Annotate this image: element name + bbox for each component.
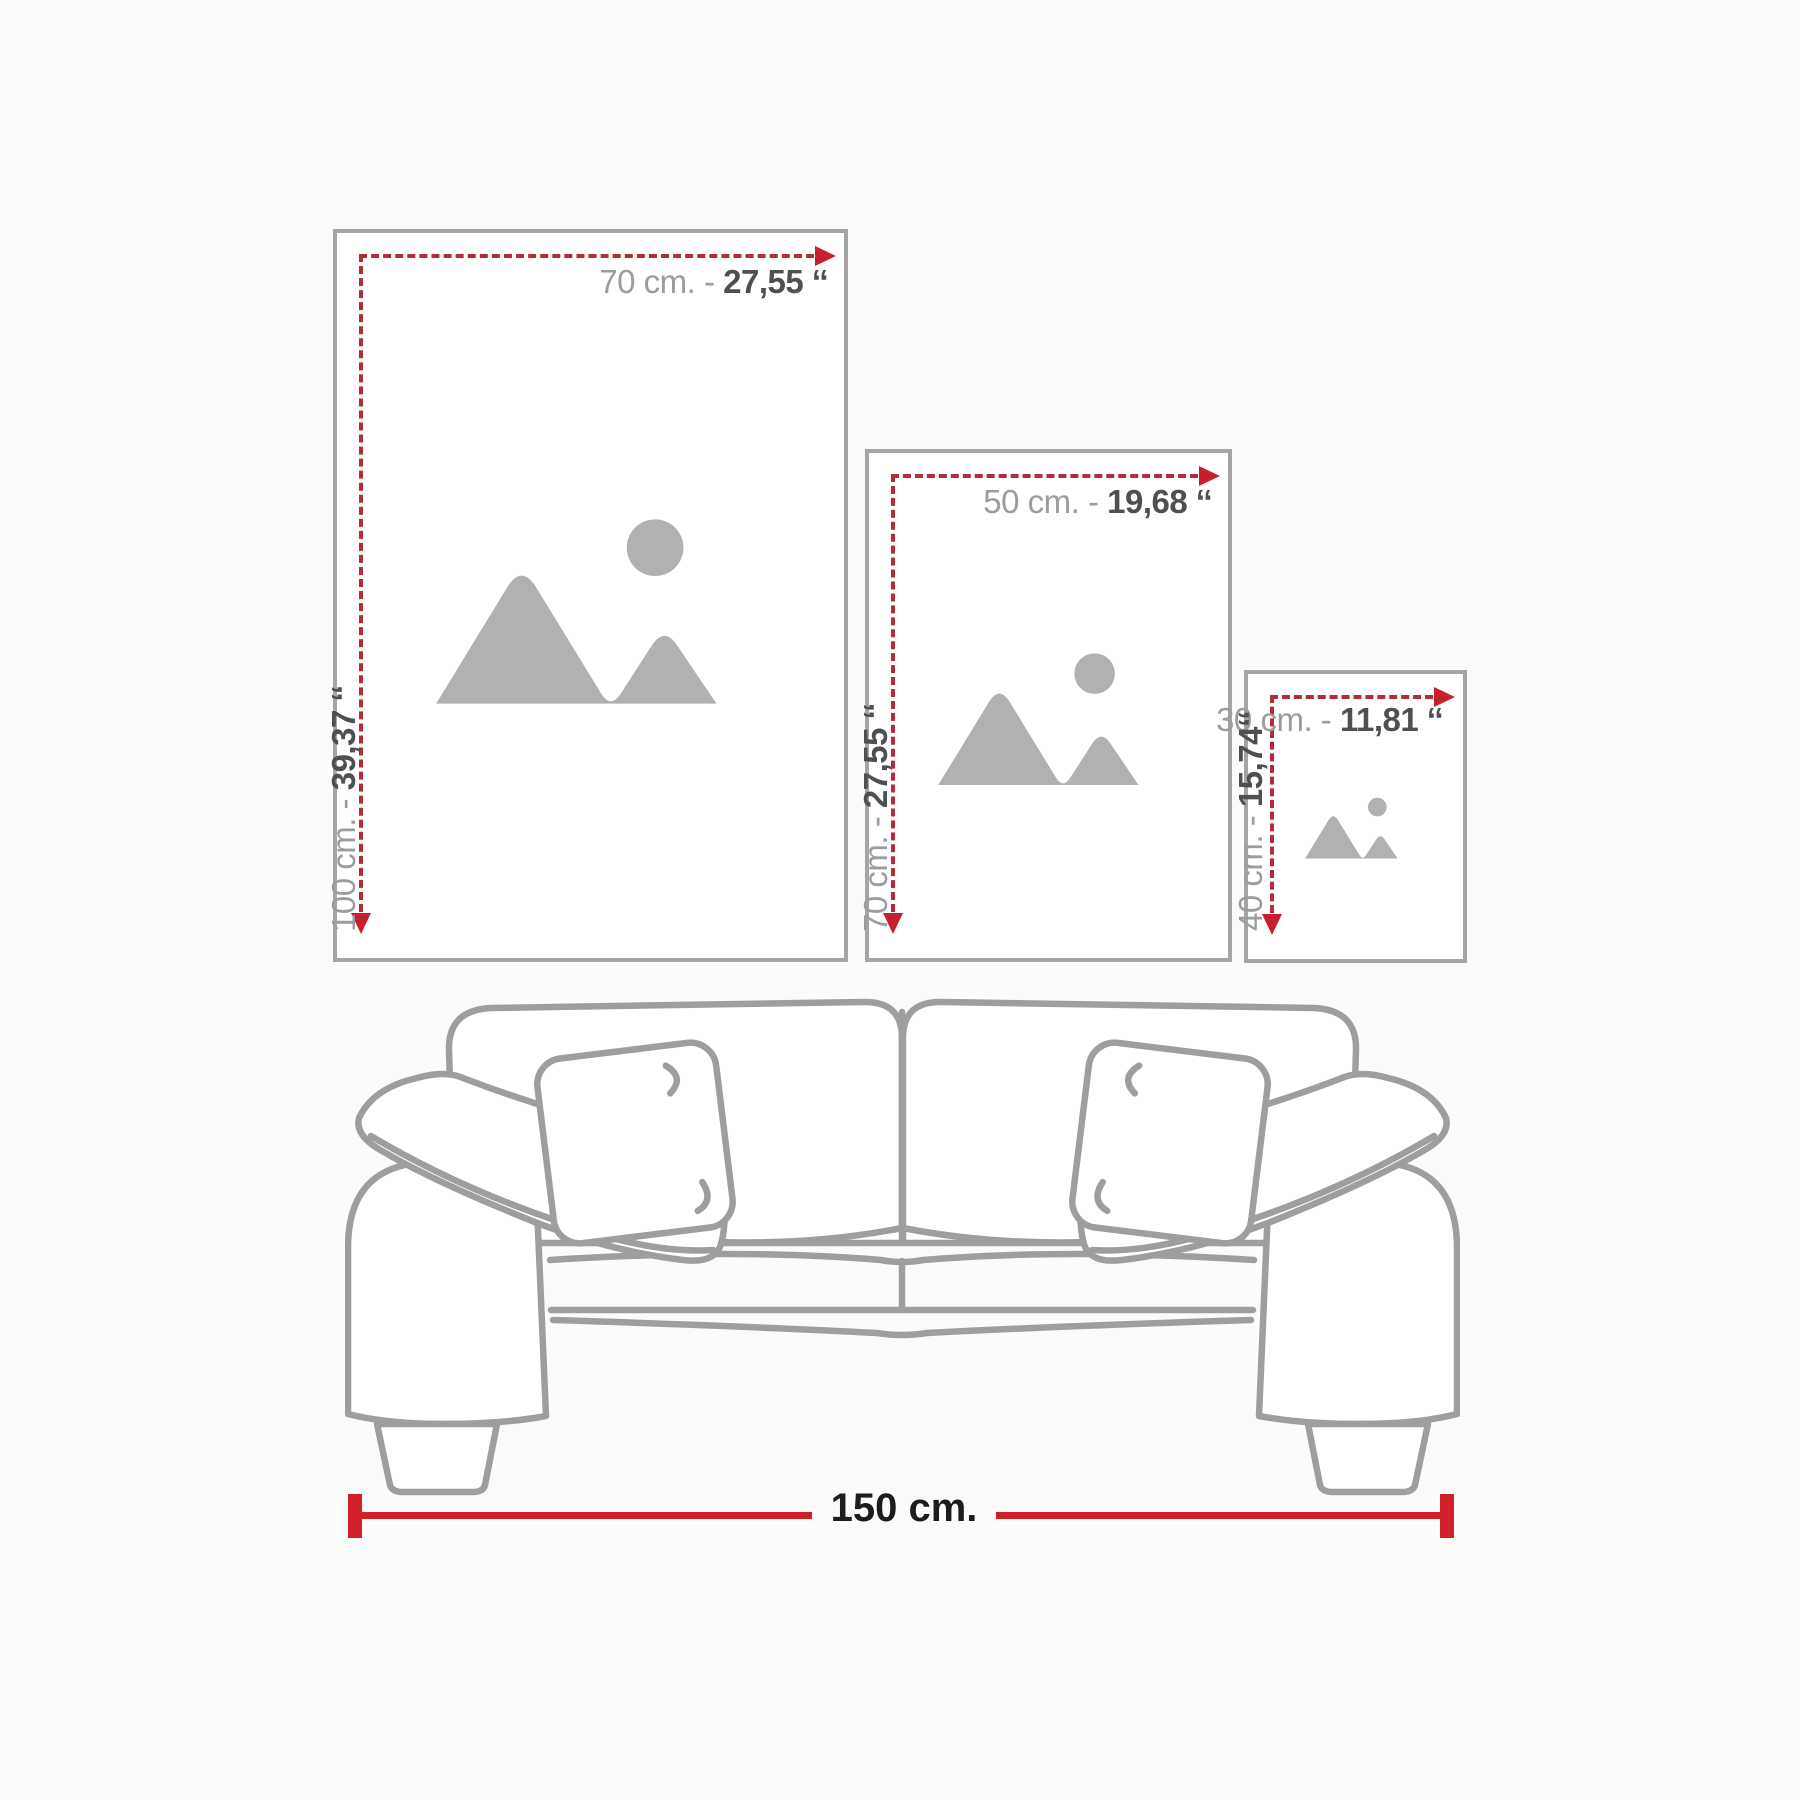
- width-dimension-line: [359, 254, 814, 258]
- sofa-leg-right: [1308, 1424, 1428, 1492]
- image-placeholder-mountains-sun-icon: [1304, 792, 1408, 861]
- height-inch-text: 39,37 ‘‘: [325, 685, 362, 790]
- sofa-throw-pillow-right: [1069, 1040, 1270, 1247]
- height-cm-text: 70 cm. -: [857, 817, 894, 932]
- width-label: 50 cm. - 19,68 ‘‘: [983, 483, 1212, 521]
- sofa-outline-graphic: [345, 998, 1460, 1498]
- sofa-leg-left: [377, 1424, 497, 1492]
- sofa-width-label: 150 cm.: [831, 1486, 978, 1531]
- height-label: 100 cm. - 39,37 ‘‘: [325, 685, 363, 932]
- width-inch-text: 27,55 ‘‘: [723, 263, 828, 300]
- height-cm-text: 100 cm. -: [325, 799, 362, 932]
- height-label: 40 cm. - 15,74‘‘: [1232, 711, 1270, 931]
- height-label: 70 cm. - 27,55 ‘‘: [857, 703, 895, 932]
- width-cm-text: 50 cm. -: [983, 483, 1098, 520]
- width-inch-text: 11,81 ‘‘: [1340, 701, 1443, 738]
- image-placeholder-mountains-sun-icon: [936, 641, 1161, 790]
- sofa-throw-pillow-left: [534, 1040, 735, 1247]
- width-dimension-line: [1270, 695, 1433, 699]
- measure-bar-line-left: [350, 1512, 812, 1519]
- size-guide-diagram: 70 cm. - 27,55 ‘‘ 100 cm. - 39,37 ‘‘ 50 …: [0, 0, 1800, 1800]
- height-inch-text: 27,55 ‘‘: [857, 703, 894, 808]
- width-inch-text: 19,68 ‘‘: [1107, 483, 1212, 520]
- measure-bar-line-right: [996, 1512, 1454, 1519]
- width-label: 70 cm. - 27,55 ‘‘: [599, 263, 828, 301]
- width-dimension-line: [891, 474, 1198, 478]
- measure-bar-endcap-right: [1440, 1494, 1454, 1538]
- width-cm-text: 70 cm. -: [599, 263, 714, 300]
- height-inch-text: 15,74‘‘: [1232, 711, 1269, 807]
- poster-frame-medium: 50 cm. - 19,68 ‘‘ 70 cm. - 27,55 ‘‘: [865, 449, 1232, 962]
- height-cm-text: 40 cm. -: [1232, 816, 1269, 931]
- poster-frame-small: 30 cm. - 11,81 ‘‘ 40 cm. - 15,74‘‘: [1244, 670, 1467, 963]
- poster-frame-large: 70 cm. - 27,55 ‘‘ 100 cm. - 39,37 ‘‘: [333, 229, 848, 962]
- image-placeholder-mountains-sun-icon: [433, 502, 748, 710]
